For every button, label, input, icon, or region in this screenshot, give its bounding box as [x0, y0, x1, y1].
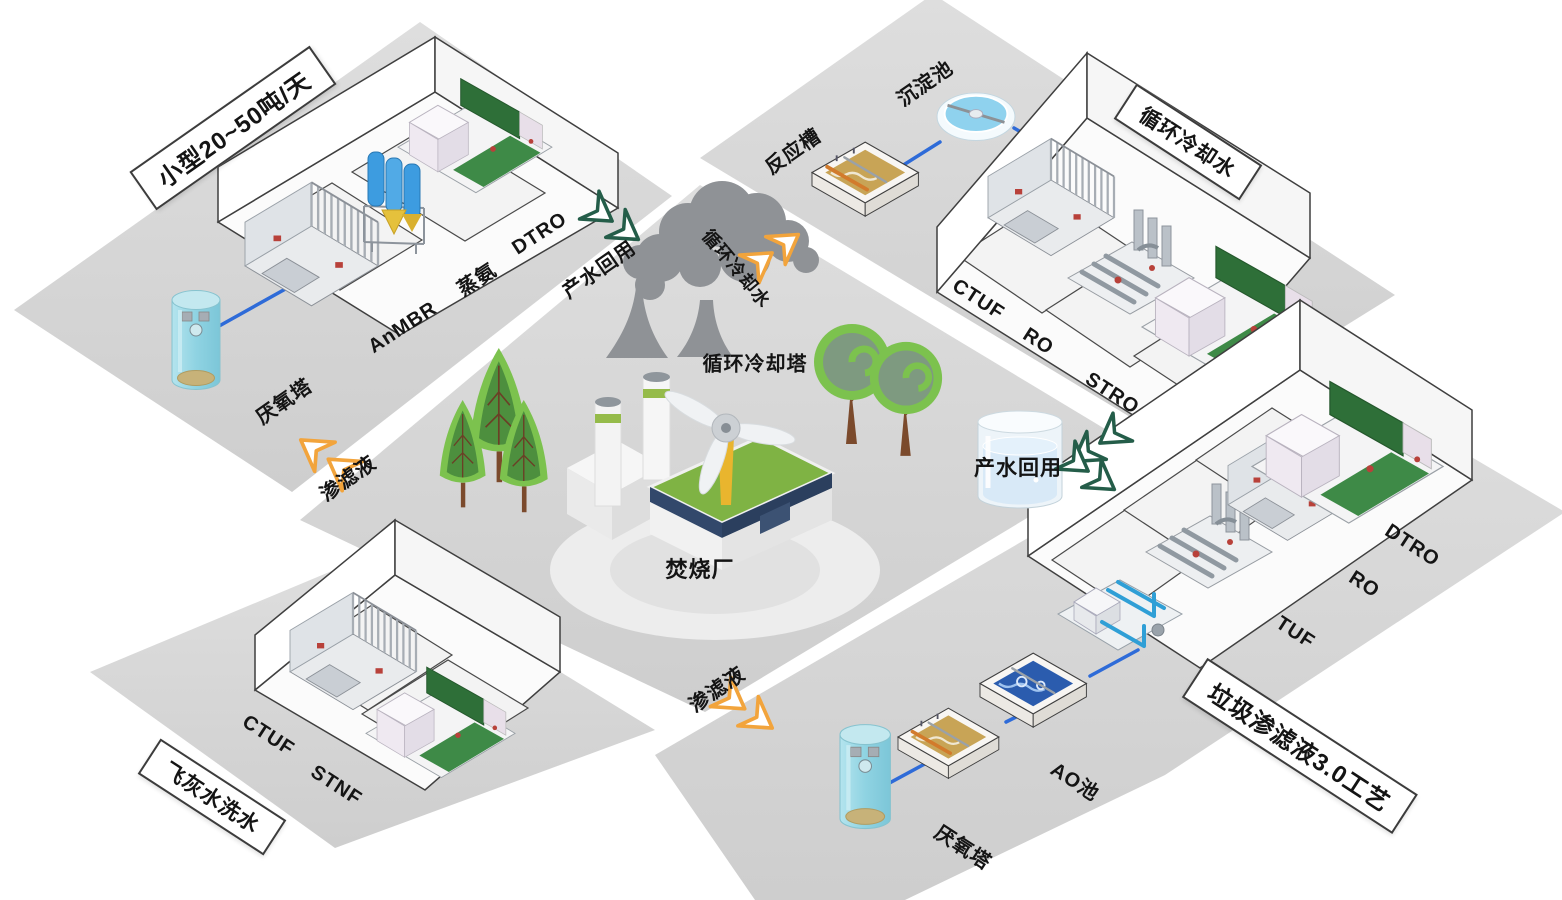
chimney-2-top: [643, 372, 670, 382]
chimney-1-top: [595, 397, 621, 407]
sedimentation-tank: [937, 93, 1015, 141]
isometric-scene: 小型20~50吨/天 AnMBR 蒸氨 DTRO 产水回用 厌氧塔 渗滤液 循环…: [0, 0, 1562, 900]
label-product-water-tank: 产水回用: [974, 452, 1062, 482]
anaerobic-tower-small: [172, 291, 220, 390]
label-incineration-plant: 焚烧厂: [665, 552, 734, 584]
chimney-1-band: [595, 414, 621, 423]
label-cooling-tower: 循环冷却塔: [703, 348, 808, 377]
anaerobic-tower-leachate: [840, 725, 890, 829]
